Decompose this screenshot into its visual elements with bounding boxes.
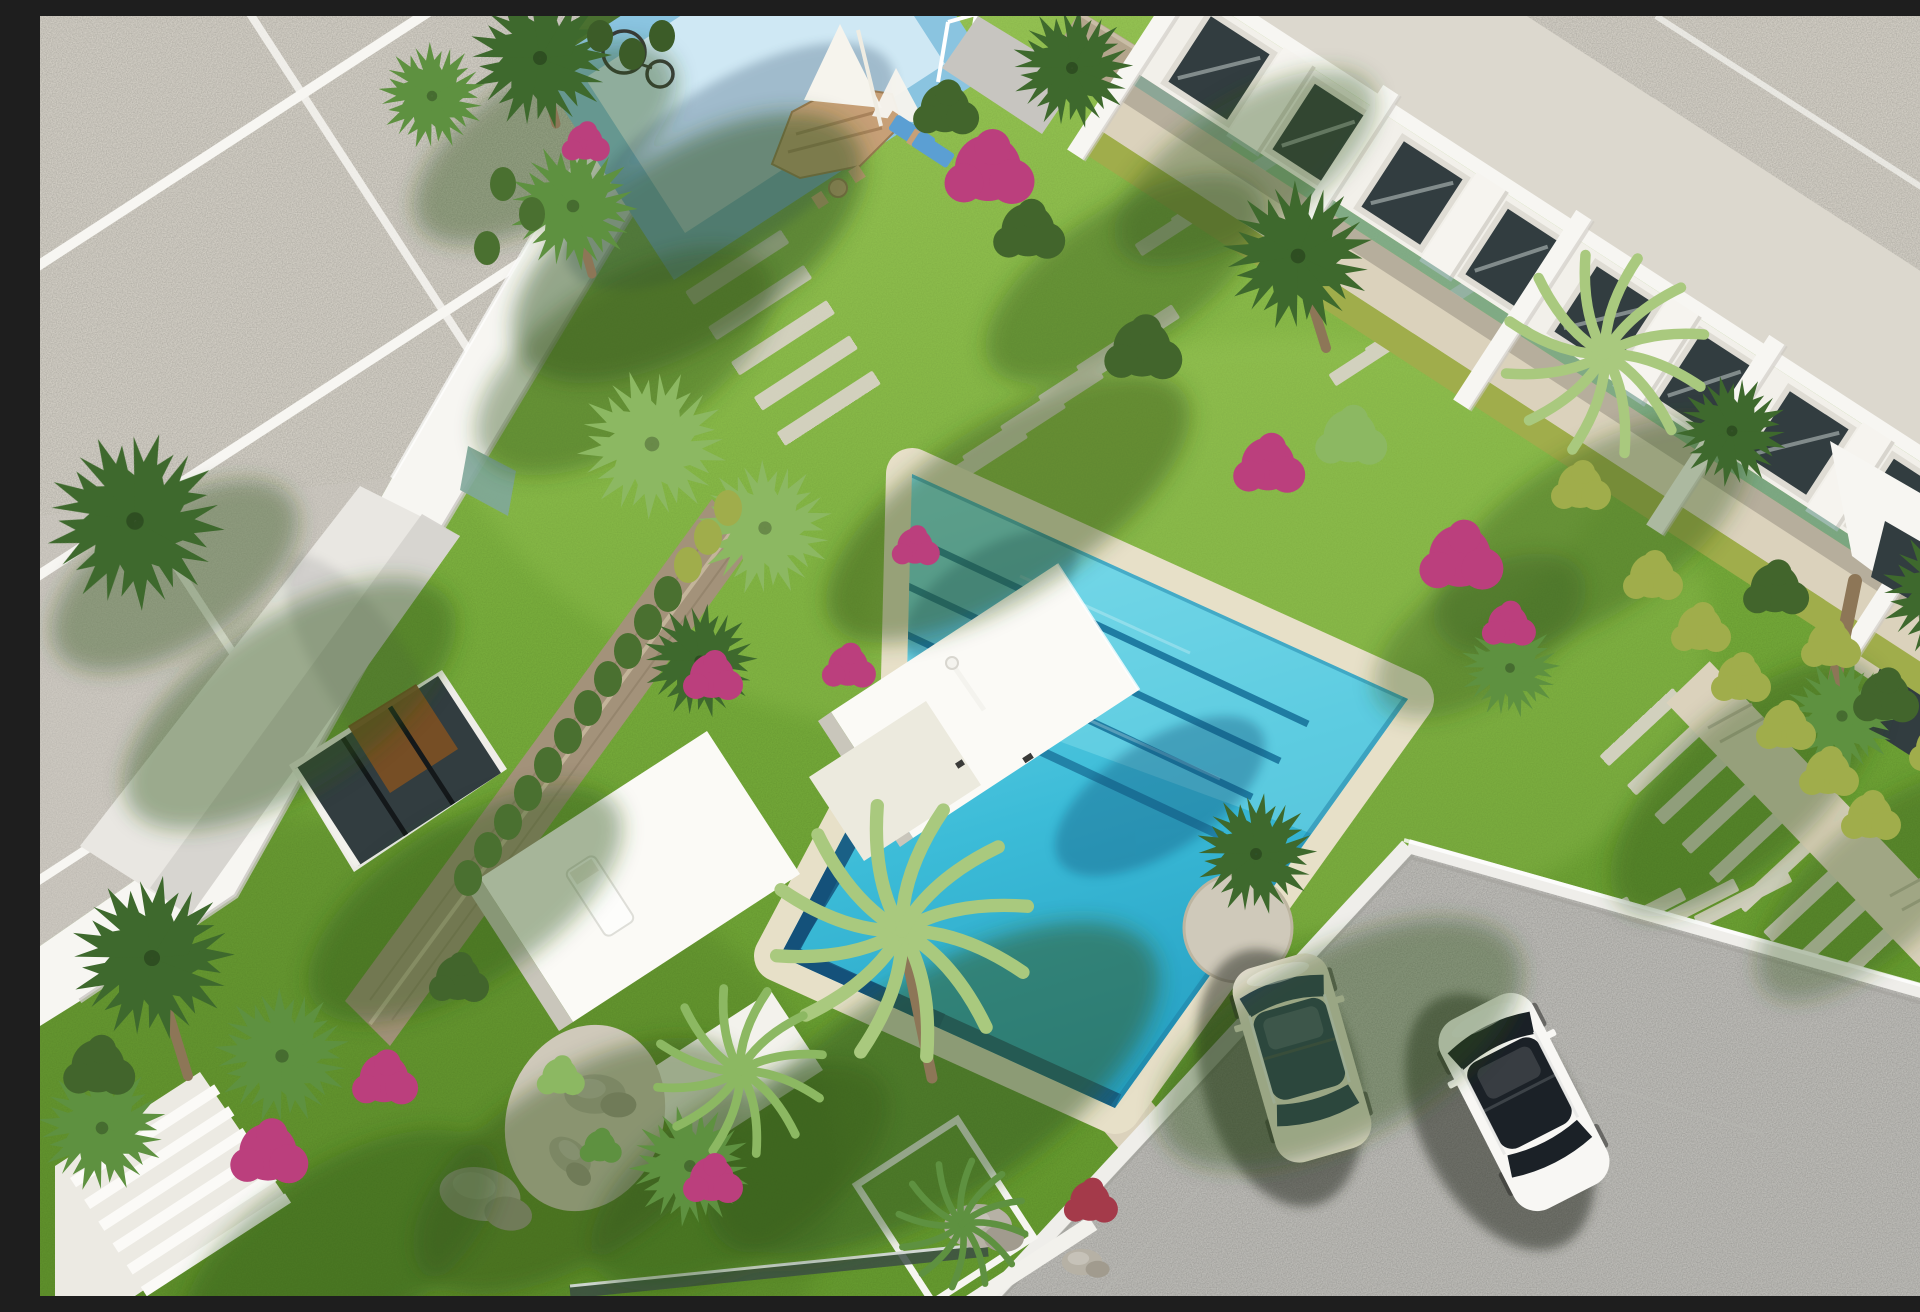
aerial-render: Aerial 3D render of a modern white resid… — [40, 16, 1920, 1296]
aerial-render-figure: Aerial 3D render of a modern white resid… — [40, 16, 1920, 1296]
